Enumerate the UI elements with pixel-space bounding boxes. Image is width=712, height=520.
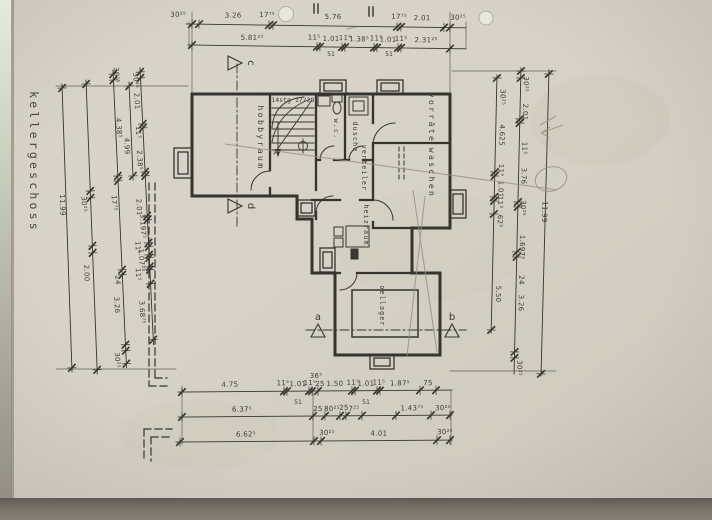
punch-hole-icon [279, 7, 294, 22]
scanned-floor-plan-photo: 30²⁵3.2617⁷⁵5.7617⁷⁵2.0130²⁵5.81²⁵11⁵1.0… [0, 0, 712, 520]
paper-edge-line [11, 0, 14, 520]
paper-left-edge [0, 0, 12, 520]
floor-plan-sheet: 30²⁵3.2617⁷⁵5.7617⁷⁵2.0130²⁵5.81²⁵11⁵1.0… [0, 0, 712, 520]
photo-vignette [0, 0, 712, 520]
table-edge-bottom [0, 498, 712, 520]
punch-hole-icon [479, 11, 493, 25]
